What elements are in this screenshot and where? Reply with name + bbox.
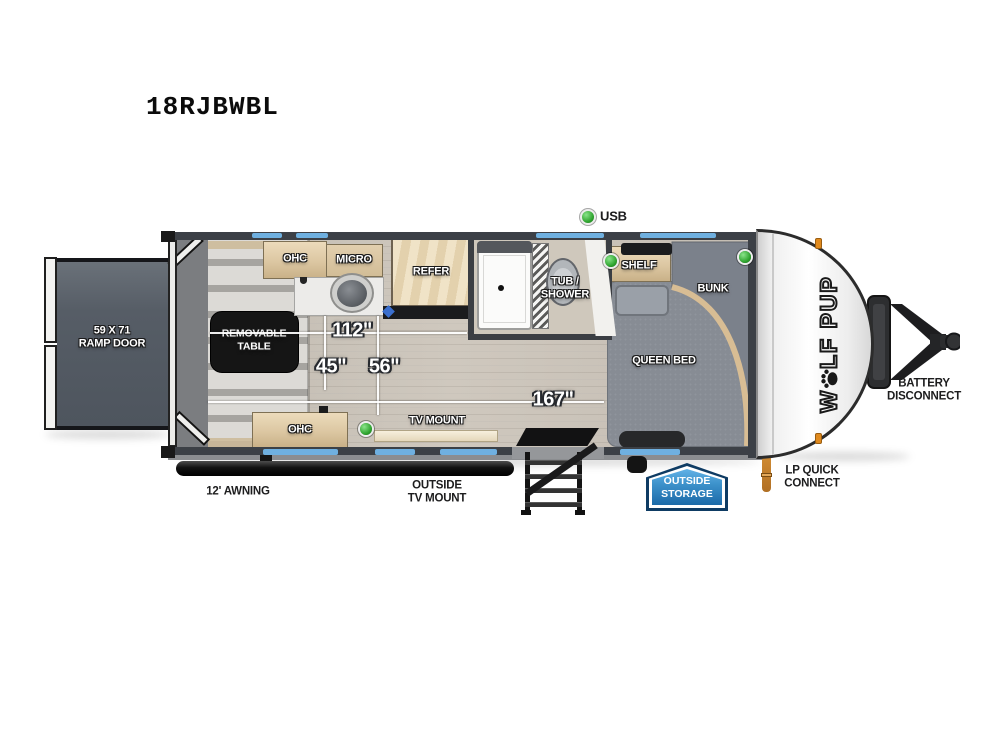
- lp-quick-connect-label-line1: LP QUICK: [784, 465, 839, 478]
- brand-logo-prefix: W: [816, 389, 842, 413]
- outside-tv-mount-label-line2: TV MOUNT: [408, 492, 466, 505]
- tub-shower-label-line2: SHOWER: [541, 288, 589, 301]
- window-bottom-3: [440, 449, 497, 455]
- floorplan-canvas: 18RJBWBL 59 X 71 RAMP DOOR REMOVABLE TAB…: [0, 0, 1000, 750]
- paw-print-icon: [819, 369, 839, 389]
- window-top-4: [640, 233, 716, 238]
- tub-inner: [483, 255, 526, 323]
- outside-storage-label-line1: OUTSIDE: [652, 475, 722, 488]
- entry-door: [516, 428, 599, 446]
- usb-indicator-icon-bunk: [739, 251, 751, 263]
- marker-light-bottom: [815, 433, 822, 444]
- window-bottom-2: [375, 449, 415, 455]
- ramp-door-label-line2: RAMP DOOR: [79, 337, 145, 350]
- outside-tv-mount-label-line1: OUTSIDE: [408, 480, 466, 493]
- removable-table-label-line2: TABLE: [222, 340, 287, 353]
- entry-steps: [519, 452, 603, 520]
- tub-shower-label: TUB / SHOWER: [541, 276, 589, 301]
- bunk-label: BUNK: [698, 283, 729, 296]
- usb-legend-label: USB: [600, 210, 627, 225]
- window-top-2: [296, 233, 328, 238]
- brand-logo: WLF PUP: [816, 275, 843, 413]
- usb-indicator-icon-shelf: [605, 255, 617, 267]
- lp-quick-connect-label: LP QUICK CONNECT: [784, 465, 839, 490]
- refer-label: REFER: [413, 266, 449, 279]
- outside-storage-label: OUTSIDE STORAGE: [652, 475, 722, 500]
- sink-bowl: [337, 280, 367, 307]
- window-bottom-1: [263, 449, 338, 455]
- wall-bottom-skirt: [168, 455, 762, 460]
- lp-quick-connect-label-line2: CONNECT: [784, 477, 839, 490]
- usb-legend-icon: [582, 211, 594, 223]
- queen-bed-label: QUEEN BED: [632, 355, 696, 368]
- storage-cylinder: [627, 456, 647, 473]
- tv-mount-bar: [374, 430, 498, 442]
- window-bottom-4: [620, 449, 680, 455]
- rear-corner-top: [161, 231, 175, 242]
- step-foot-right: [575, 510, 585, 515]
- range-strip: [383, 306, 472, 319]
- tub-ledge: [477, 241, 532, 253]
- rear-opening-frame: [168, 240, 177, 447]
- dim-label-167: 167": [533, 389, 574, 412]
- frontcap-shadow: [780, 452, 910, 461]
- awning-tube: [176, 461, 514, 476]
- ramp-exterior-panel-bottom: [44, 345, 57, 430]
- ohc-top-label: OHC: [283, 253, 307, 266]
- dim-label-56: 56": [369, 356, 399, 379]
- dim-line-45: [324, 316, 326, 390]
- tub-shower-label-line1: TUB /: [541, 276, 589, 289]
- faucet-hook-left: [300, 277, 307, 284]
- model-title: 18RJBWBL: [146, 92, 279, 122]
- outside-tv-mount-label: OUTSIDE TV MOUNT: [408, 480, 466, 505]
- window-top-1: [252, 233, 282, 238]
- ramp-shadow: [45, 430, 170, 439]
- front-cap-seam: [772, 234, 774, 455]
- ohc-bottom-label: OHC: [288, 424, 312, 437]
- marker-light-top: [815, 238, 822, 249]
- dim-label-112: 112": [332, 320, 372, 343]
- window-top-3: [536, 233, 604, 238]
- step-tread-4: [525, 502, 582, 507]
- ramp-exterior-panel-top: [44, 257, 57, 343]
- cabinet-handle: [319, 406, 328, 413]
- battery-disconnect-label-line2: DISCONNECT: [887, 390, 961, 403]
- tub-drain: [498, 285, 504, 291]
- micro-label: MICRO: [336, 254, 372, 267]
- battery-disconnect-label-line1: BATTERY: [887, 378, 961, 391]
- lp-pipe-fitting: [761, 473, 772, 477]
- brand-logo-suffix: LF PUP: [816, 275, 842, 369]
- outside-storage-label-line2: STORAGE: [652, 488, 722, 501]
- bed-pillow: [615, 285, 669, 316]
- rear-corner-bottom: [161, 446, 175, 458]
- dim-label-45: 45": [316, 356, 346, 379]
- battery-disconnect-label: BATTERY DISCONNECT: [887, 378, 961, 403]
- step-foot-left: [521, 510, 531, 515]
- tv-mount-label: TV MOUNT: [409, 415, 465, 428]
- ramp-door-label: 59 X 71 RAMP DOOR: [79, 325, 145, 350]
- awning-label: 12' AWNING: [206, 486, 270, 499]
- usb-indicator-icon-galley: [360, 423, 372, 435]
- ramp-door-label-line1: 59 X 71: [79, 325, 145, 338]
- shelf-label: SHELF: [621, 260, 656, 273]
- shelf-pillow: [621, 243, 672, 255]
